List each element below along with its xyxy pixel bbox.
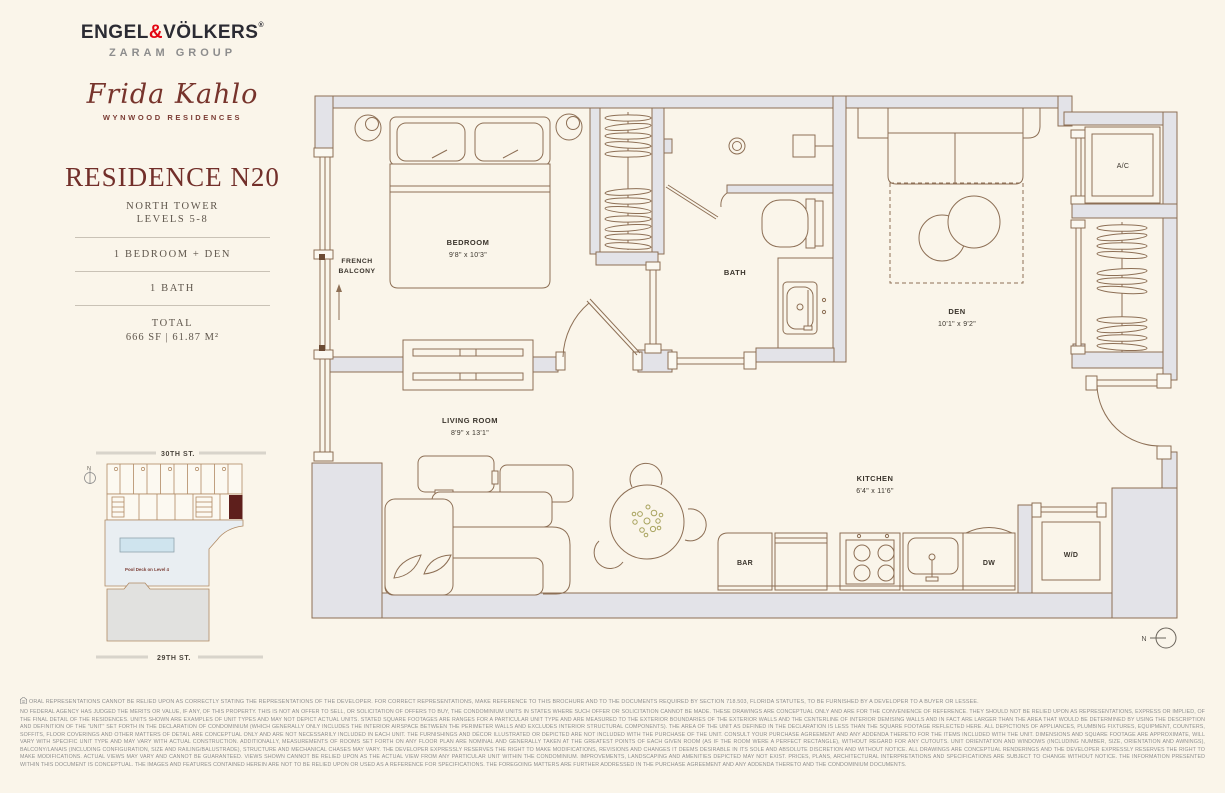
- plan-north-icon: N: [1141, 628, 1176, 648]
- bath-toilet: [762, 199, 823, 248]
- disclaimer-body: NO FEDERAL AGENCY HAS JUDGED THE MERITS …: [20, 709, 1205, 769]
- ac-closet: A/C: [1071, 127, 1160, 204]
- bedroom-nightstand-right: [556, 114, 582, 140]
- legal-disclaimer: ORAL REPRESENTATIONS CANNOT BE RELIED UP…: [20, 697, 1205, 769]
- brand-ampersand: &: [149, 22, 163, 43]
- den-dims: 10'1" x 9'2": [938, 321, 976, 328]
- living-label: LIVING ROOM: [442, 416, 498, 425]
- balcony-arrow-icon: [336, 284, 342, 320]
- den-label: DEN: [948, 307, 965, 316]
- bedroom-label: BEDROOM: [447, 238, 490, 247]
- floor-plan: A/C: [300, 80, 1205, 655]
- wd-label: W/D: [1064, 552, 1079, 559]
- entry-door: [1086, 374, 1171, 459]
- bedroom-closet: [605, 112, 651, 250]
- site-building-footprint: [107, 464, 243, 520]
- bar-label: BAR: [737, 560, 753, 567]
- den-sofa: [858, 108, 1040, 184]
- bath-door: [666, 185, 727, 219]
- bedroom-bed: [390, 117, 550, 288]
- media-console: [403, 340, 533, 390]
- sidebar: ENGEL&VÖLKERS® ZARAM GROUP Frida Kahlo W…: [30, 0, 315, 343]
- site-north-icon: N: [85, 466, 96, 484]
- pool-deck-label: Pool Deck on Level 4: [125, 567, 169, 572]
- kitchen-sink: [903, 533, 963, 590]
- kitchen-dims: 6'4" x 11'6": [856, 488, 894, 495]
- kitchen-stove: [840, 533, 900, 590]
- disclaimer-line1-text: ORAL REPRESENTATIONS CANNOT BE RELIED UP…: [29, 699, 979, 705]
- frida-kahlo-logo: Frida Kahlo: [30, 79, 315, 110]
- bath-shower: [729, 135, 833, 157]
- bedroom-door: [563, 299, 640, 357]
- brand-volkers: VÖLKERS: [163, 22, 258, 43]
- kitchen-dishwasher: [963, 528, 1015, 591]
- bath-label: BATH: [724, 268, 746, 277]
- living-dims: 8'9" x 13'1": [451, 430, 489, 437]
- street-top-label: 30TH ST.: [96, 451, 266, 458]
- brochure-page: ENGEL&VÖLKERS® ZARAM GROUP Frida Kahlo W…: [0, 0, 1225, 793]
- tower-label: NORTH TOWER LEVELS 5-8: [30, 200, 315, 226]
- street-bottom-label: 29TH ST.: [96, 655, 263, 662]
- bath-vanity: [778, 258, 833, 348]
- engel-volkers-logo: ENGEL&VÖLKERS®: [30, 22, 315, 44]
- dining-table: [594, 463, 706, 568]
- den-closet: [1071, 220, 1147, 354]
- brand-engel: ENGEL: [81, 22, 149, 43]
- levels-label: LEVELS 5-8: [137, 214, 209, 225]
- wd-closet: [1032, 503, 1106, 580]
- kitchen-label: KITCHEN: [857, 474, 894, 483]
- kitchen-fridge: [775, 533, 827, 590]
- site-map: 30TH ST. N: [70, 440, 285, 675]
- svg-text:A/C: A/C: [1117, 163, 1130, 170]
- equal-housing-icon: [20, 697, 27, 704]
- project-subtitle: WYNWOOD RESIDENCES: [30, 113, 315, 122]
- bedroom-nightstand-left: [355, 115, 381, 141]
- dw-label: DW: [983, 560, 995, 567]
- site-lower-block: [107, 583, 209, 641]
- site-pool-deck: Pool Deck on Level 4: [105, 520, 243, 586]
- total-value: 666 SF | 61.87 M²: [30, 332, 315, 343]
- bedroom-dims: 9'8" x 10'3": [449, 252, 487, 259]
- brand-group: ZARAM GROUP: [30, 47, 315, 59]
- divider: [75, 237, 270, 238]
- french-balcony-label-2: BALCONY: [338, 268, 375, 275]
- highlighted-unit: [229, 495, 243, 519]
- french-balcony-label-1: FRENCH: [341, 258, 372, 265]
- baths-fact: 1 BATH: [30, 283, 315, 294]
- svg-text:N: N: [1141, 636, 1146, 643]
- divider: [75, 305, 270, 306]
- french-balcony-window: [314, 148, 333, 461]
- disclaimer-line1: ORAL REPRESENTATIONS CANNOT BE RELIED UP…: [20, 697, 1205, 705]
- page-title: RESIDENCE N20: [30, 162, 315, 193]
- tower-name: NORTH TOWER: [126, 201, 219, 212]
- den-coffee-tables: [919, 196, 1000, 261]
- site-pool: [120, 538, 174, 552]
- bedrooms-fact: 1 BEDROOM + DEN: [30, 249, 315, 260]
- total-label: TOTAL: [30, 318, 315, 329]
- living-sofa: [385, 456, 573, 595]
- divider: [75, 271, 270, 272]
- kitchen-counter: [718, 528, 1015, 591]
- svg-text:30TH ST.: 30TH ST.: [161, 451, 195, 458]
- svg-text:29TH ST.: 29TH ST.: [157, 655, 191, 662]
- registered-mark: ®: [258, 22, 264, 29]
